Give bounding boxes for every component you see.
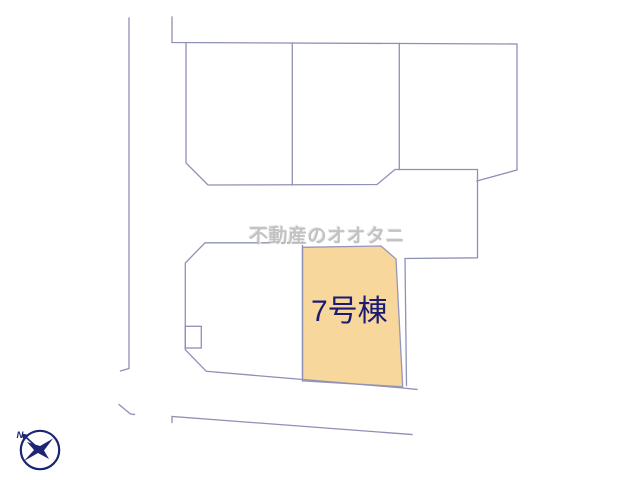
subdivision-boundary-line <box>172 17 517 181</box>
road-corner-segment <box>119 405 135 415</box>
plot-7-label: 7号棟 <box>311 297 388 327</box>
bottom-road-line <box>172 417 412 435</box>
road-edge-left-line <box>121 18 130 371</box>
compass-north-label: N <box>17 430 25 441</box>
watermark: 不動産のオオタニ <box>249 227 405 246</box>
utility-box <box>185 326 201 348</box>
plot-map: 不動産のオオタニ 7号棟 N <box>0 0 640 480</box>
compass-icon: N <box>16 426 64 474</box>
compass-bird-needle <box>24 439 53 462</box>
